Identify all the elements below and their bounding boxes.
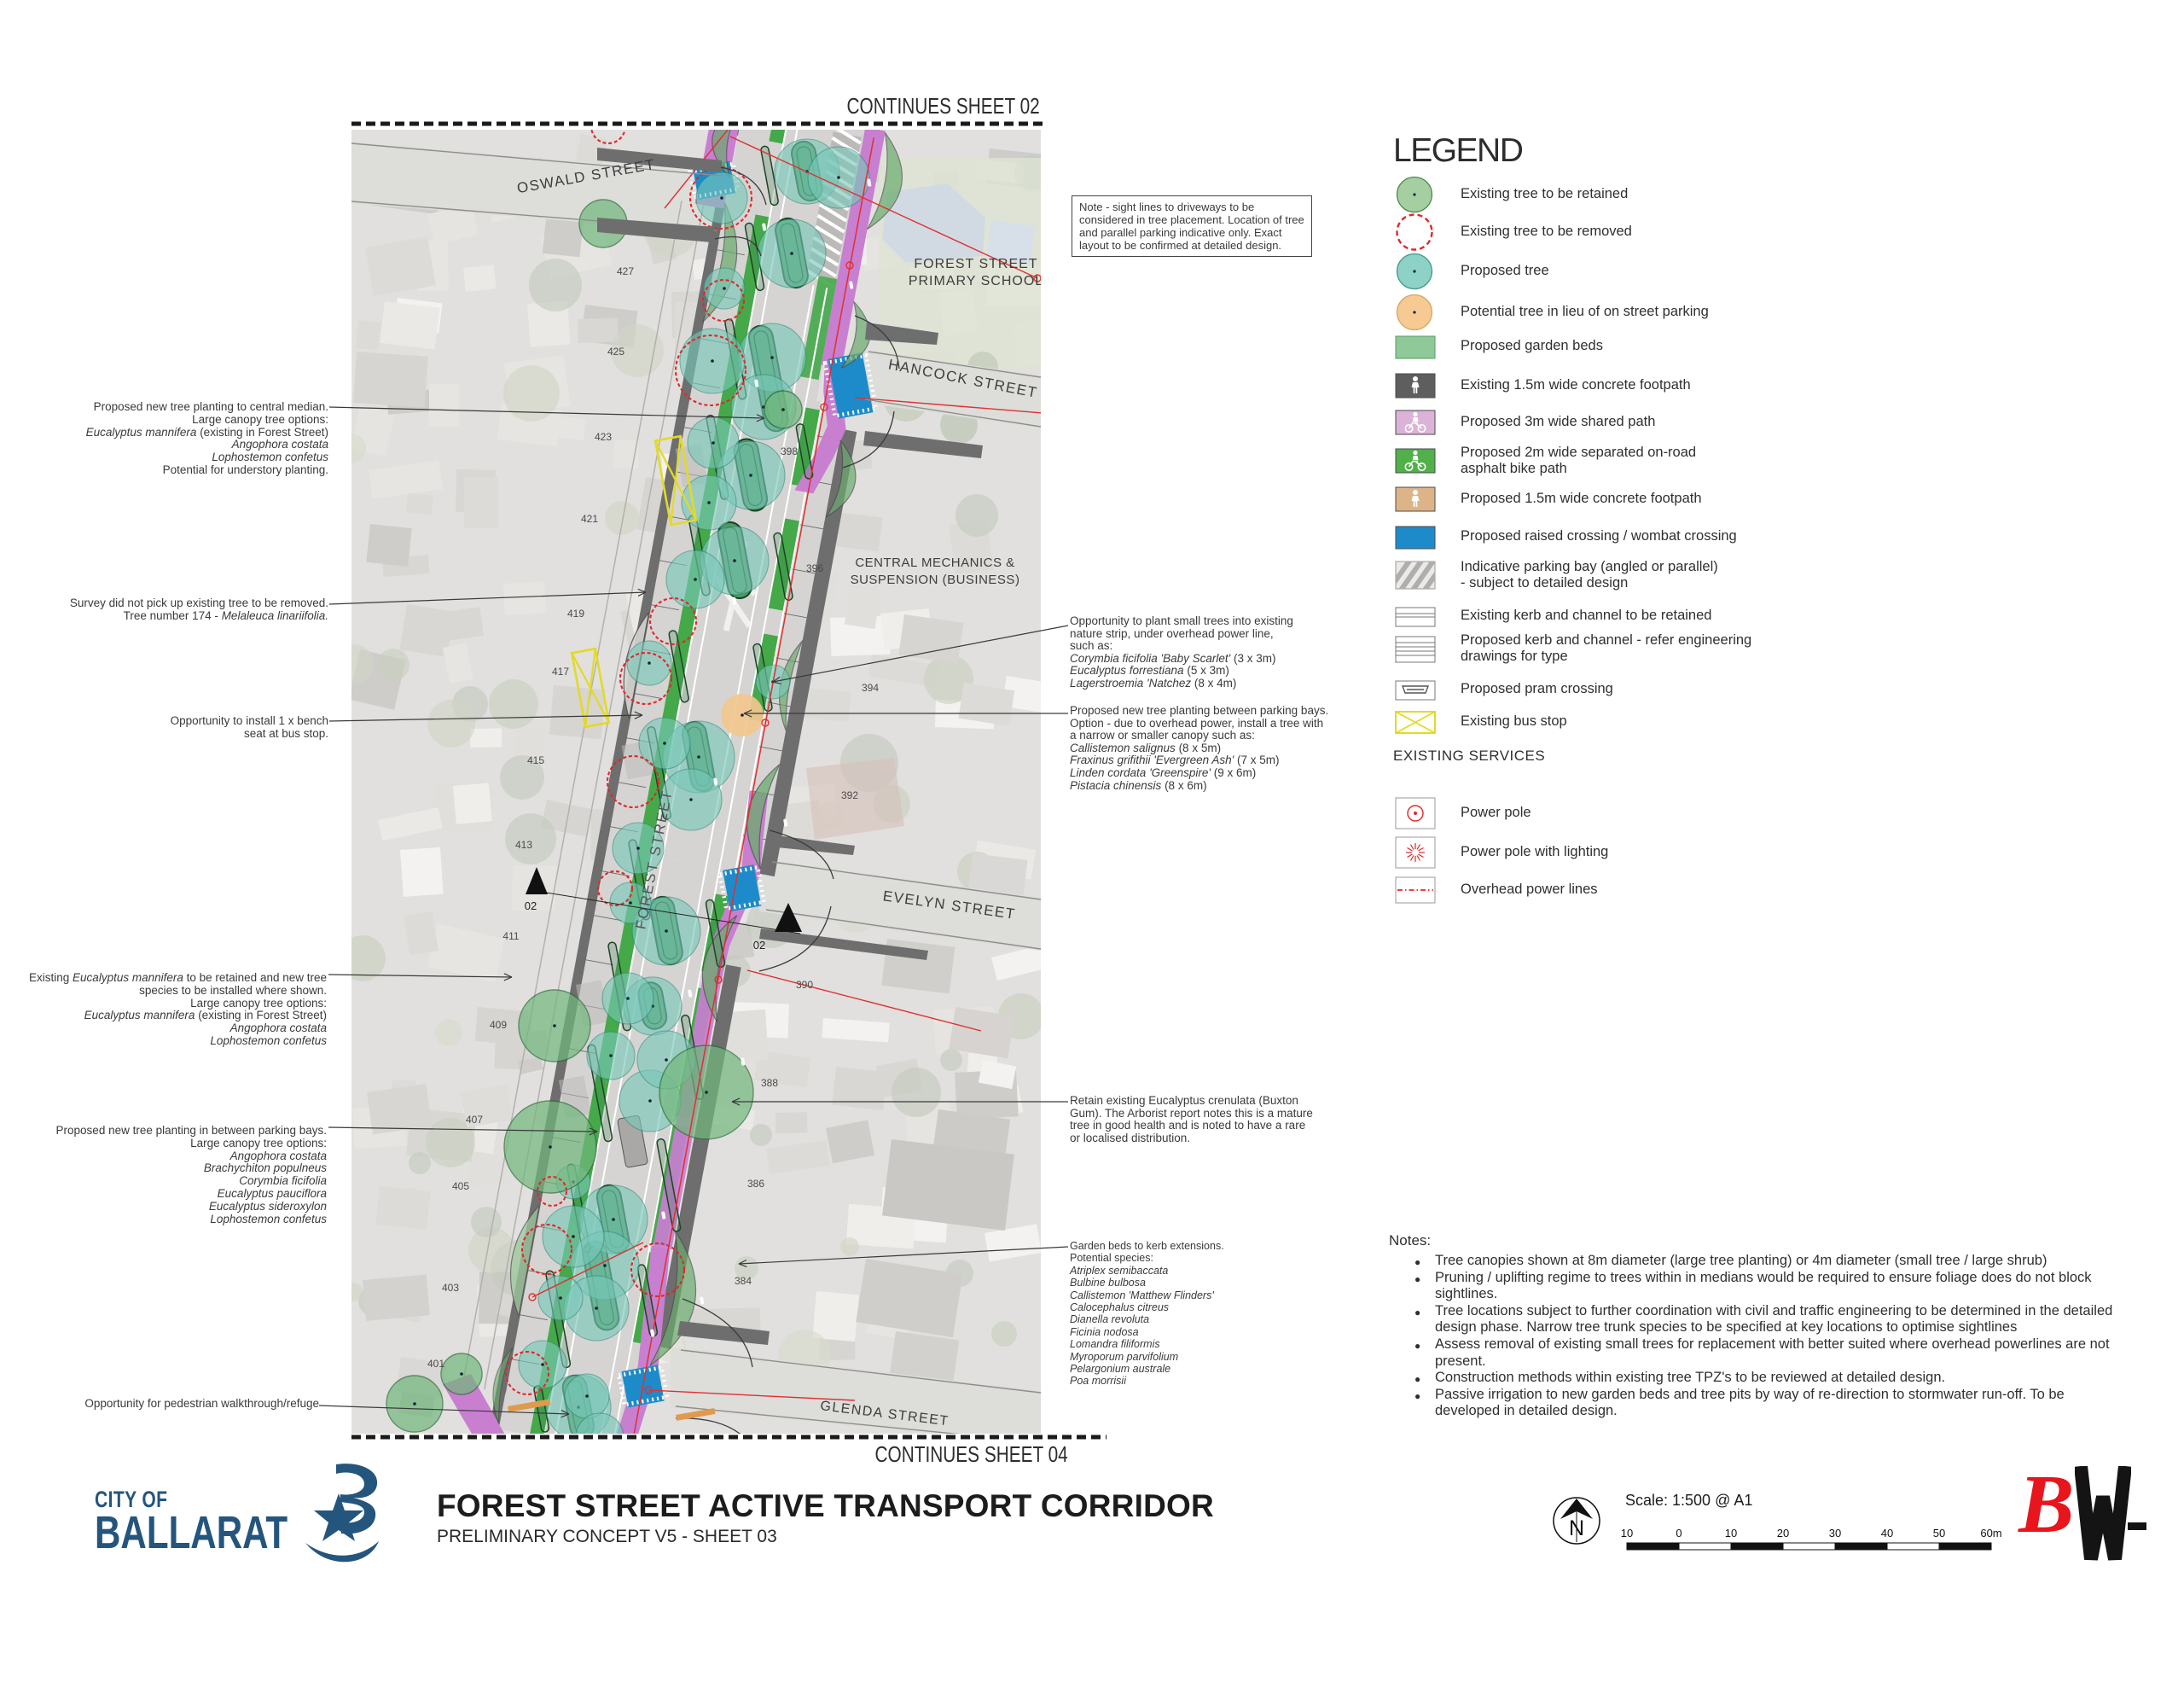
svg-text:0: 0 — [1676, 1527, 1682, 1539]
svg-text:40: 40 — [1881, 1527, 1893, 1539]
svg-text:10: 10 — [1621, 1527, 1633, 1539]
svg-text:20: 20 — [1777, 1527, 1789, 1539]
svg-text:30: 30 — [1829, 1527, 1841, 1539]
svg-text:60m: 60m — [1980, 1527, 2001, 1539]
svg-text:10: 10 — [1725, 1527, 1737, 1539]
svg-text:50: 50 — [1933, 1527, 1945, 1539]
